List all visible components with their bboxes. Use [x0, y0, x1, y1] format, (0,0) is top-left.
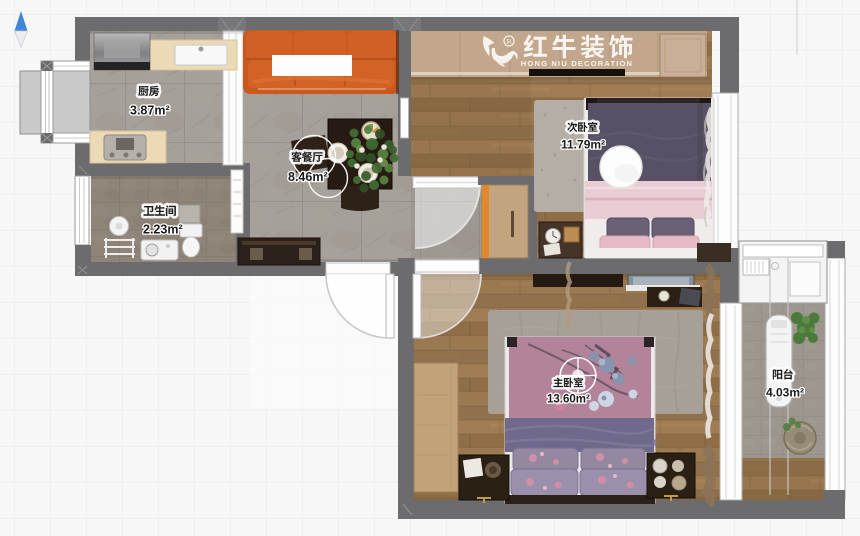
svg-text:4.03m²: 4.03m² [766, 386, 804, 400]
svg-text:R: R [506, 39, 511, 46]
svg-text:8.46m²: 8.46m² [288, 170, 328, 184]
svg-text:3.87m²: 3.87m² [130, 104, 170, 118]
svg-text:13.60m²: 13.60m² [547, 394, 590, 406]
svg-text:2.23m²: 2.23m² [143, 223, 183, 237]
svg-text:11.79m²: 11.79m² [561, 138, 605, 152]
svg-text:HONG NIU DECORATION: HONG NIU DECORATION [521, 59, 633, 68]
